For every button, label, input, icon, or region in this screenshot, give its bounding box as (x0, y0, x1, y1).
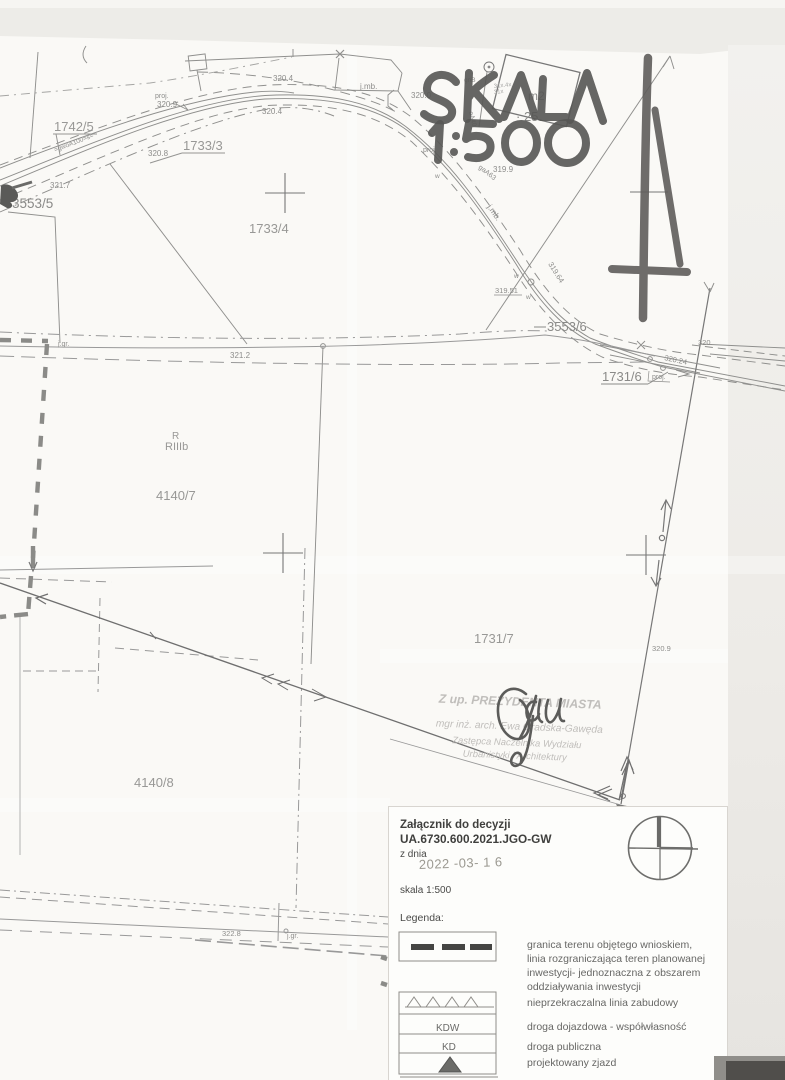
svg-text:droga dojazdowa - współwłasnoś: droga dojazdowa - współwłasność (527, 1021, 686, 1033)
svg-text:1733/4: 1733/4 (249, 221, 289, 236)
svg-text:skala 1:500: skala 1:500 (400, 885, 452, 896)
svg-text:3553/5: 3553/5 (12, 196, 53, 211)
svg-text:w: w (434, 173, 440, 180)
svg-text:320.4: 320.4 (262, 107, 283, 116)
svg-text:4140/7: 4140/7 (156, 488, 196, 503)
svg-text:j.mb.: j.mb. (359, 82, 377, 91)
svg-text:320.: 320. (698, 338, 713, 347)
svg-text:KDW: KDW (436, 1023, 460, 1034)
svg-text:320.4: 320.4 (273, 74, 294, 83)
svg-text:projektowany zjazd: projektowany zjazd (527, 1057, 616, 1069)
svg-text:320.9: 320.9 (157, 100, 178, 109)
svg-text:1733/3: 1733/3 (183, 138, 223, 153)
svg-text:UA.6730.600.2021.JGO-GW: UA.6730.600.2021.JGO-GW (400, 832, 552, 846)
svg-text:1731/6: 1731/6 (602, 369, 642, 384)
svg-text:320.8: 320.8 (148, 149, 169, 158)
svg-text:w: w (525, 294, 531, 301)
svg-text:4140/8: 4140/8 (134, 775, 174, 790)
svg-text:proj.: proj. (155, 93, 169, 100)
svg-text:granica terenu objętego wniosk: granica terenu objętego wnioskiem, (527, 939, 692, 951)
svg-text:2022 -03- 1 6: 2022 -03- 1 6 (419, 854, 503, 872)
svg-text:31x: 31x (494, 89, 504, 96)
svg-text:3553/6: 3553/6 (547, 319, 587, 334)
svg-text:linia rozgraniczająca teren pl: linia rozgraniczająca teren planowanej (527, 953, 705, 965)
svg-text:321.2: 321.2 (230, 351, 251, 360)
svg-text:KD: KD (442, 1042, 456, 1053)
svg-text:w: w (513, 273, 519, 280)
svg-text:319.51: 319.51 (495, 286, 518, 295)
svg-text:320.9: 320.9 (652, 644, 671, 653)
svg-text:j.gr.: j.gr. (286, 933, 298, 940)
svg-text:droga publiczna: droga publiczna (527, 1041, 601, 1053)
svg-text:proj.: proj. (652, 374, 666, 381)
svg-text:Legenda:: Legenda: (400, 912, 444, 924)
svg-text:Załącznik do decyzji: Załącznik do decyzji (400, 819, 511, 831)
svg-text:inwestycji- jednoznaczna z obs: inwestycji- jednoznaczna z obszarem (527, 967, 701, 979)
svg-text:1742/5: 1742/5 (54, 119, 94, 134)
svg-text:322.8: 322.8 (222, 929, 241, 938)
svg-text:nieprzekraczalna linia zabudow: nieprzekraczalna linia zabudowy (527, 997, 679, 1009)
svg-text:RIIIb: RIIIb (165, 441, 188, 453)
svg-text:oddziaływania inwestycji: oddziaływania inwestycji (527, 981, 641, 993)
svg-text:321.7: 321.7 (50, 181, 71, 190)
svg-text:j.gr.: j.gr. (57, 341, 69, 348)
svg-text:1731/7: 1731/7 (474, 631, 514, 646)
svg-text:319.9: 319.9 (493, 165, 514, 174)
